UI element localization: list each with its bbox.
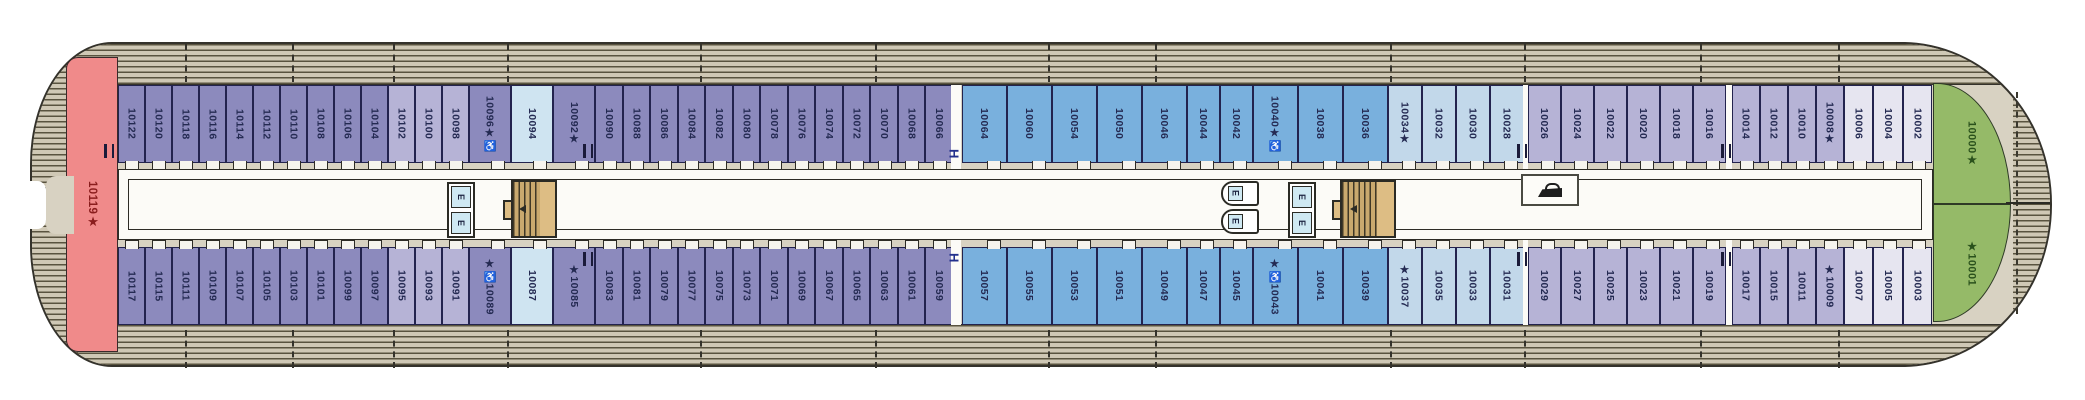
stern-notch-deck	[46, 176, 74, 234]
cabin-door	[1167, 161, 1181, 170]
cabin-door	[1167, 240, 1181, 249]
cabin-door	[1574, 161, 1588, 170]
cabin-10099: 10099	[334, 247, 361, 325]
elevator: E	[1292, 212, 1312, 234]
cabin-number: 10038	[1314, 108, 1326, 139]
hull-top-band	[32, 44, 2050, 85]
cabin-door	[575, 240, 589, 249]
cabin-number: 10023	[1637, 270, 1649, 301]
cabin-door	[1323, 240, 1337, 249]
cabin-10114: 10114	[226, 85, 253, 163]
cabin-number: 10084	[685, 108, 697, 139]
cabin-number: 10119★	[85, 181, 99, 229]
cabin-number: 10106	[342, 108, 354, 139]
cabin-number: 10105	[261, 270, 273, 301]
cabin-door	[1323, 161, 1337, 170]
cabin-10111: 10111	[172, 247, 199, 325]
cabin-10060: 10060	[1007, 85, 1052, 163]
cabin-door	[422, 240, 436, 249]
cabin-number: 10088	[630, 108, 642, 139]
cabin-10091: 10091	[442, 247, 469, 325]
cabin-10070: 10070	[870, 85, 898, 163]
cabin-number: 10045	[1230, 270, 1242, 301]
hull-band-tick	[1048, 330, 1050, 368]
cabin-number: 10030	[1467, 108, 1479, 139]
cabin-10024: 10024	[1561, 85, 1594, 163]
hull-band-tick	[393, 330, 395, 368]
cabin-number: 10091	[450, 270, 462, 301]
cabin-10005: 10005	[1873, 247, 1903, 325]
elevator-pod: E	[1221, 181, 1259, 206]
cabin-door	[1032, 240, 1046, 249]
cabin-number: 10110	[288, 109, 300, 140]
cabin-number: 10112	[261, 109, 273, 140]
cabin-10107: 10107	[226, 247, 253, 325]
cabin-10082: 10082	[705, 85, 733, 163]
cabin-number: 10064	[978, 108, 990, 139]
cabin-10073: 10073	[733, 247, 761, 325]
cabin-10104: 10104	[361, 85, 388, 163]
cabin-10011: 10011	[1788, 247, 1816, 325]
cabin-door	[795, 240, 809, 249]
cabin-number: 10008★	[1824, 102, 1836, 146]
cabin-number: 10028	[1501, 108, 1513, 139]
cabin-number: 10100	[423, 108, 435, 139]
cabin-10033: 10033	[1456, 247, 1490, 325]
hull-bottom-band	[32, 324, 2050, 365]
cabin-10040: 10040★♿	[1253, 85, 1298, 163]
fire-door-marker	[583, 252, 593, 266]
cabin-door	[713, 240, 727, 249]
cabin-door	[1706, 161, 1720, 170]
cabin-number: 10079	[658, 270, 670, 301]
cabin-10076: 10076	[788, 85, 816, 163]
elevator-label: E	[456, 194, 466, 200]
cabin-door	[1796, 161, 1810, 170]
cabin-10089: ★♿10089	[469, 247, 511, 325]
cabin-10055: 10055	[1007, 247, 1052, 325]
cabin-door	[1233, 161, 1247, 170]
elevator-label: E	[1231, 218, 1241, 224]
cabin-number: 10046	[1158, 108, 1170, 139]
cabin-door	[1574, 240, 1588, 249]
cabin-10117: 10117	[118, 247, 145, 325]
cabin-10051: 10051	[1097, 247, 1142, 325]
cabin-door	[1504, 240, 1518, 249]
cabin-door	[905, 161, 919, 170]
cabin-door	[1470, 161, 1484, 170]
cabin-number: ★♿10043	[1269, 258, 1282, 315]
cabin-10050: 10050	[1097, 85, 1142, 163]
cabin-number: 10095	[396, 270, 408, 301]
cabin-number: 10012	[1768, 108, 1780, 139]
cabin-10100: 10100	[415, 85, 442, 163]
cabin-door	[533, 240, 547, 249]
cabin-door	[1436, 240, 1450, 249]
cabin-door	[1740, 161, 1754, 170]
hull-band-tick	[1155, 330, 1157, 368]
cabin-number: 10120	[153, 108, 165, 139]
cabin-10069: 10069	[788, 247, 816, 325]
cabin-10003: 10003	[1903, 247, 1933, 325]
cabin-door	[395, 240, 409, 249]
hull-band-tick	[292, 330, 294, 368]
hull-band-tick	[700, 330, 702, 368]
cabin-door	[152, 240, 166, 249]
elevator: E	[1228, 214, 1243, 229]
cabin-number: 10086	[658, 108, 670, 139]
fire-door-marker	[583, 144, 593, 158]
cabin-door	[1233, 240, 1247, 249]
hull-band-tick	[507, 330, 509, 368]
cabin-10057: 10057	[962, 247, 1007, 325]
cabin-10077: 10077	[678, 247, 706, 325]
cabin-door	[1912, 240, 1926, 249]
cabin-door	[1200, 240, 1214, 249]
cabin-number: 10050	[1113, 108, 1125, 139]
cabin-number: 10068	[905, 108, 917, 139]
cabin-door	[630, 240, 644, 249]
cabin-door	[768, 161, 782, 170]
cabin-10026: 10026	[1528, 85, 1561, 163]
cabin-door	[314, 240, 328, 249]
cabin-number: 10061	[905, 270, 917, 301]
hull-band-tick	[185, 44, 187, 82]
cabin-10101: 10101	[307, 247, 334, 325]
cabin-10043: ★♿10043	[1253, 247, 1298, 325]
cabin-10067: 10067	[815, 247, 843, 325]
cabin-door	[1768, 240, 1782, 249]
cabin-10098: 10098	[442, 85, 469, 163]
cabin-number: 10029	[1538, 270, 1550, 301]
cabin-number: 10055	[1023, 270, 1035, 301]
stairs	[511, 180, 557, 238]
cabin-door	[1673, 161, 1687, 170]
cabin-number: 10053	[1068, 270, 1080, 301]
cabin-10041: 10041	[1298, 247, 1343, 325]
cabin-door	[125, 161, 139, 170]
cabin-number: 10118	[180, 109, 192, 140]
cabin-door	[905, 240, 919, 249]
cabin-number: 10070	[878, 108, 890, 139]
deck-plan: 1012210120101181011610114101121011010108…	[0, 0, 2085, 400]
cabin-door	[823, 161, 837, 170]
cabin-door	[713, 161, 727, 170]
hull-band-tick	[1155, 44, 1157, 82]
elevator: E	[1292, 186, 1312, 208]
cabin-number: 10077	[685, 270, 697, 301]
cabin-door	[341, 240, 355, 249]
cabin-door	[1853, 240, 1867, 249]
cabin-number: 10075	[713, 270, 725, 301]
fire-door-marker	[1517, 252, 1527, 266]
cabin-10086: 10086	[650, 85, 678, 163]
cabin-door	[179, 240, 193, 249]
cabin-number: 10033	[1467, 270, 1479, 301]
cabin-10080: 10080	[733, 85, 761, 163]
bow-centerline	[2006, 202, 2050, 204]
cabin-number: 10000★	[1966, 121, 1979, 167]
cabin-10063: 10063	[870, 247, 898, 325]
cabin-number: 10017	[1740, 270, 1752, 301]
cabin-number: 10036	[1359, 108, 1371, 139]
cabin-10038: 10038	[1298, 85, 1343, 163]
cabin-10006: 10006	[1844, 85, 1874, 163]
cabin-number: 10111	[180, 271, 192, 301]
cabin-number: 10071	[768, 270, 780, 301]
hull-band-tick	[292, 44, 294, 82]
cabin-number: 10024	[1571, 108, 1583, 139]
cabin-number: 10097	[369, 270, 381, 301]
cabin-door	[685, 240, 699, 249]
cabin-10110: 10110	[280, 85, 307, 163]
cabin-number: 10073	[740, 270, 752, 301]
hull-band-tick	[1838, 330, 1840, 368]
cabin-number: 10032	[1433, 108, 1445, 139]
cabin-door	[740, 161, 754, 170]
cabin-number: 10016	[1703, 108, 1715, 139]
cabin-number: 10115	[153, 271, 165, 302]
elevator: E	[451, 186, 471, 208]
cabin-10034: 10034★	[1388, 85, 1422, 163]
cabin-door	[1504, 161, 1518, 170]
cabin-number: 10104	[369, 108, 381, 139]
hull-band-tick	[1048, 44, 1050, 82]
cabin-number: 10066	[933, 108, 945, 139]
cabin-door	[1077, 240, 1091, 249]
cabin-10068: 10068	[898, 85, 926, 163]
elevator-bank: E E	[1288, 182, 1316, 238]
cabin-number: ★♿10089	[484, 258, 497, 315]
cabin-door	[287, 161, 301, 170]
cabin-10096: 10096★♿	[469, 85, 511, 163]
cabin-number: 10044	[1197, 108, 1209, 139]
cabin-number: 10076	[795, 108, 807, 139]
stairs-arrow-icon	[1350, 205, 1357, 213]
cabin-number: 10047	[1197, 270, 1209, 301]
fire-door-marker	[1721, 144, 1731, 158]
elevator-label: E	[456, 220, 466, 226]
cabin-number: 10022	[1604, 108, 1616, 139]
cabin-10106: 10106	[334, 85, 361, 163]
cabin-door	[1122, 240, 1136, 249]
cabin-10030: 10030	[1456, 85, 1490, 163]
cabin-10108: 10108	[307, 85, 334, 163]
cabin-10054: 10054	[1052, 85, 1097, 163]
cabin-number: 10018	[1670, 108, 1682, 139]
elevator: E	[1228, 186, 1243, 201]
cabin-number: 10025	[1604, 270, 1616, 301]
cabin-10047: 10047	[1187, 247, 1220, 325]
cabin-10088: 10088	[623, 85, 651, 163]
cabin-door	[575, 161, 589, 170]
cabin-number: 10080	[740, 108, 752, 139]
cabin-10023: 10023	[1627, 247, 1660, 325]
cabin-number: 10090	[603, 108, 615, 139]
cabin-door	[1607, 161, 1621, 170]
cabin-number: 10021	[1670, 270, 1682, 301]
cabin-door	[740, 240, 754, 249]
cabin-10071: 10071	[760, 247, 788, 325]
cabin-10120: 10120	[145, 85, 172, 163]
cabin-door	[1883, 161, 1897, 170]
stairs	[1340, 180, 1396, 238]
cabin-number: 10005	[1882, 270, 1894, 301]
cabin-number: 10020	[1637, 108, 1649, 139]
cabin-row-bottom: 1011710115101111010910107101051010310101…	[0, 247, 2085, 325]
hull-band-tick	[507, 44, 509, 82]
cabin-number: 10041	[1314, 270, 1326, 301]
cabin-10046: 10046	[1142, 85, 1187, 163]
cabin-number: 10109	[207, 270, 219, 301]
cabin-10045: 10045	[1220, 247, 1253, 325]
cabin-number: 10114	[234, 109, 246, 140]
cabin-10064: 10064	[962, 85, 1007, 163]
cabin-10021: 10021	[1660, 247, 1693, 325]
elevator-label: E	[1231, 190, 1241, 196]
cabin-number: 10039	[1359, 270, 1371, 301]
hull-band-tick	[1700, 330, 1702, 368]
cabin-number: 10006	[1852, 108, 1864, 139]
cabin-10012: 10012	[1760, 85, 1788, 163]
cabin-door	[341, 161, 355, 170]
cabin-10090: 10090	[595, 85, 623, 163]
cabin-number: 10051	[1113, 270, 1125, 301]
cabin-number: 10014	[1740, 108, 1752, 139]
cabin-door	[1640, 161, 1654, 170]
stairs-arrow-icon	[519, 205, 526, 213]
cabin-number: 10034★	[1399, 102, 1411, 146]
cabin-number: 10060	[1023, 108, 1035, 139]
cabin-10087: 10087	[511, 247, 553, 325]
cabin-number: 10019	[1703, 270, 1715, 301]
cabin-door	[1883, 240, 1897, 249]
cabin-number: ★10037	[1399, 264, 1411, 308]
cabin-door	[658, 240, 672, 249]
cabin-10029: 10029	[1528, 247, 1561, 325]
cabin-10010: 10010	[1788, 85, 1816, 163]
cabin-door	[1796, 240, 1810, 249]
elevator-label: E	[1297, 194, 1307, 200]
hull-band-tick	[1838, 44, 1840, 82]
cabin-number: 10010	[1796, 108, 1808, 139]
cabin-door	[368, 240, 382, 249]
cabin-door	[603, 240, 617, 249]
launderette	[1521, 174, 1579, 206]
cabin-10103: 10103	[280, 247, 307, 325]
cabin-door	[1541, 161, 1555, 170]
iron-icon	[1538, 183, 1562, 197]
cabin-10118: 10118	[172, 85, 199, 163]
cabin-number: 10093	[423, 270, 435, 301]
cabin-door	[768, 240, 782, 249]
cabin-door	[685, 161, 699, 170]
cabin-number: 10002	[1911, 108, 1923, 139]
cabin-door	[1032, 161, 1046, 170]
cabin-door	[287, 240, 301, 249]
cabin-door	[314, 161, 328, 170]
cabin-10014: 10014	[1732, 85, 1760, 163]
cabin-number: 10092★	[568, 102, 580, 146]
cabin-10036: 10036	[1343, 85, 1388, 163]
cabin-10122: 10122	[118, 85, 145, 163]
cabin-door	[1912, 161, 1926, 170]
cabin-number: 10063	[878, 270, 890, 301]
elevator-bank: E E	[447, 182, 475, 238]
cabin-door	[823, 240, 837, 249]
cabin-door	[1706, 240, 1720, 249]
hull-band-tick	[1524, 44, 1526, 82]
cabin-door	[1470, 240, 1484, 249]
cabin-number: 10098	[450, 108, 462, 139]
cabin-10061: 10061	[898, 247, 926, 325]
cabin-door	[878, 161, 892, 170]
cabin-door	[260, 240, 274, 249]
cabin-10037: ★10037	[1388, 247, 1422, 325]
cabin-10025: 10025	[1594, 247, 1627, 325]
cabin-10015: 10015	[1760, 247, 1788, 325]
cabin-number: 10116	[207, 109, 219, 140]
cabin-door	[1402, 161, 1416, 170]
cabin-10035: 10035	[1422, 247, 1456, 325]
cabin-door	[368, 161, 382, 170]
cabin-10017: 10017	[1732, 247, 1760, 325]
cabin-number: 10108	[315, 108, 327, 139]
cabin-number: 10083	[603, 270, 615, 301]
cabin-10008: 10008★	[1816, 85, 1844, 163]
cabin-door	[152, 161, 166, 170]
cabin-10115: 10115	[145, 247, 172, 325]
fire-door-marker	[104, 144, 114, 158]
cabin-number: 10067	[823, 270, 835, 301]
cabin-row-top: 1012210120101181011610114101121011010108…	[0, 85, 2085, 163]
cabin-door	[1740, 240, 1754, 249]
cabin-number: 10103	[288, 270, 300, 301]
cabin-number: 10094	[526, 108, 538, 139]
cabin-10084: 10084	[678, 85, 706, 163]
cabin-10105: 10105	[253, 247, 280, 325]
cabin-door	[533, 161, 547, 170]
cabin-number: ★10009	[1824, 264, 1836, 308]
cabin-number: 10102	[396, 108, 408, 139]
cabin-door	[1824, 240, 1838, 249]
cabin-door	[1200, 161, 1214, 170]
cabin-10044: 10044	[1187, 85, 1220, 163]
cabin-door	[1436, 161, 1450, 170]
cabin-door	[878, 240, 892, 249]
cabin-door	[1673, 240, 1687, 249]
cabin-number: 10026	[1538, 108, 1550, 139]
cabin-10079: 10079	[650, 247, 678, 325]
cabin-number: ★10001	[1966, 240, 1979, 286]
cabin-number: 10082	[713, 108, 725, 139]
crossing-label: H	[947, 253, 962, 262]
crossing-marker: H	[944, 144, 964, 164]
stern-notch	[22, 181, 46, 229]
cabin-10072: 10072	[843, 85, 871, 163]
cabin-door	[206, 240, 220, 249]
cabin-door	[1541, 240, 1555, 249]
cabin-number: 10059	[933, 270, 945, 301]
hull-band-tick	[1390, 44, 1392, 82]
cabin-door	[850, 161, 864, 170]
cabin-number: 10003	[1911, 270, 1923, 301]
cabin-number: ★10085	[568, 264, 580, 308]
cabin-door	[658, 161, 672, 170]
cabin-number: 10015	[1768, 270, 1780, 301]
cabin-door	[1824, 161, 1838, 170]
cabin-number: 10057	[978, 270, 990, 301]
